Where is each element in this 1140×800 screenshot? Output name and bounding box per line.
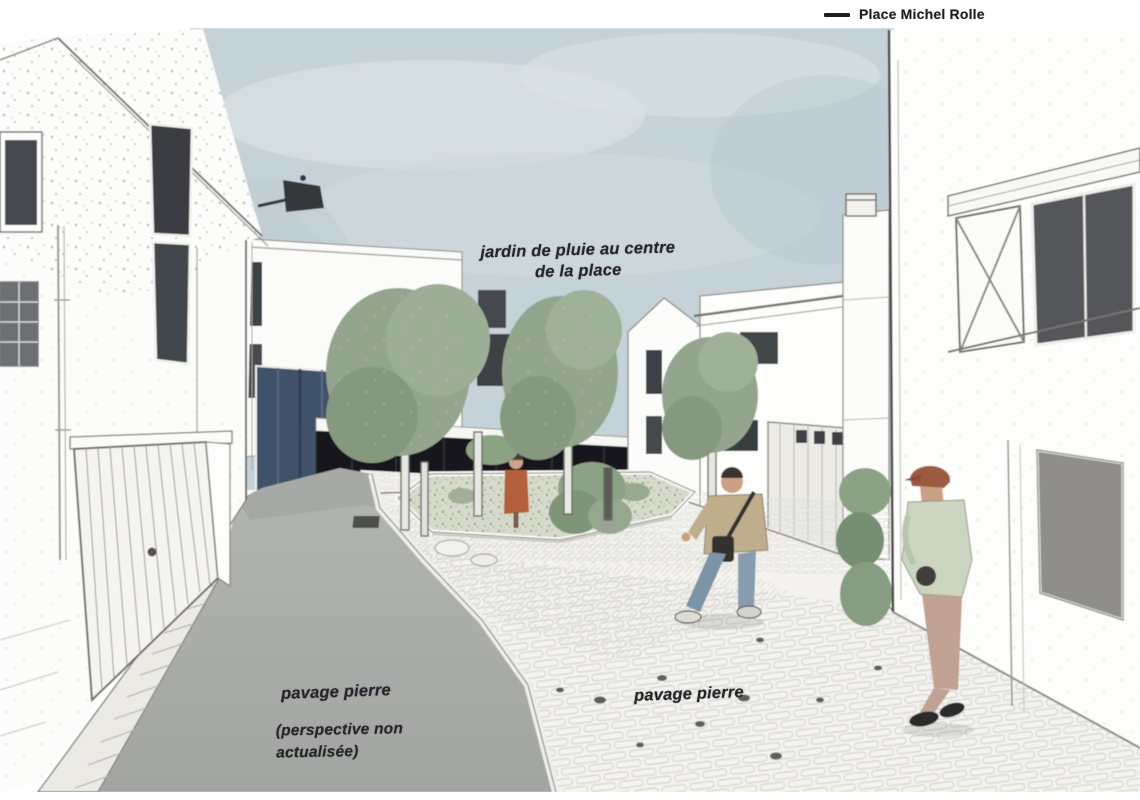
legend-line-icon — [824, 13, 850, 17]
perspective-rendering-page: Place Michel Rolle jardin de pluie au ce… — [0, 0, 1140, 800]
legend-label: Place Michel Rolle — [859, 6, 985, 22]
scene-illustration — [0, 0, 1140, 800]
annotation-paving-right: pavage pierre — [634, 683, 745, 706]
gate-handle — [148, 548, 157, 557]
annotation-rain-garden: jardin de pluie au centre de la place — [475, 237, 680, 284]
legend: Place Michel Rolle — [824, 6, 985, 22]
annotation-perspective-note: (perspective non actualisée) — [276, 718, 447, 764]
annotation-paving-left: pavage pierre — [281, 681, 392, 704]
